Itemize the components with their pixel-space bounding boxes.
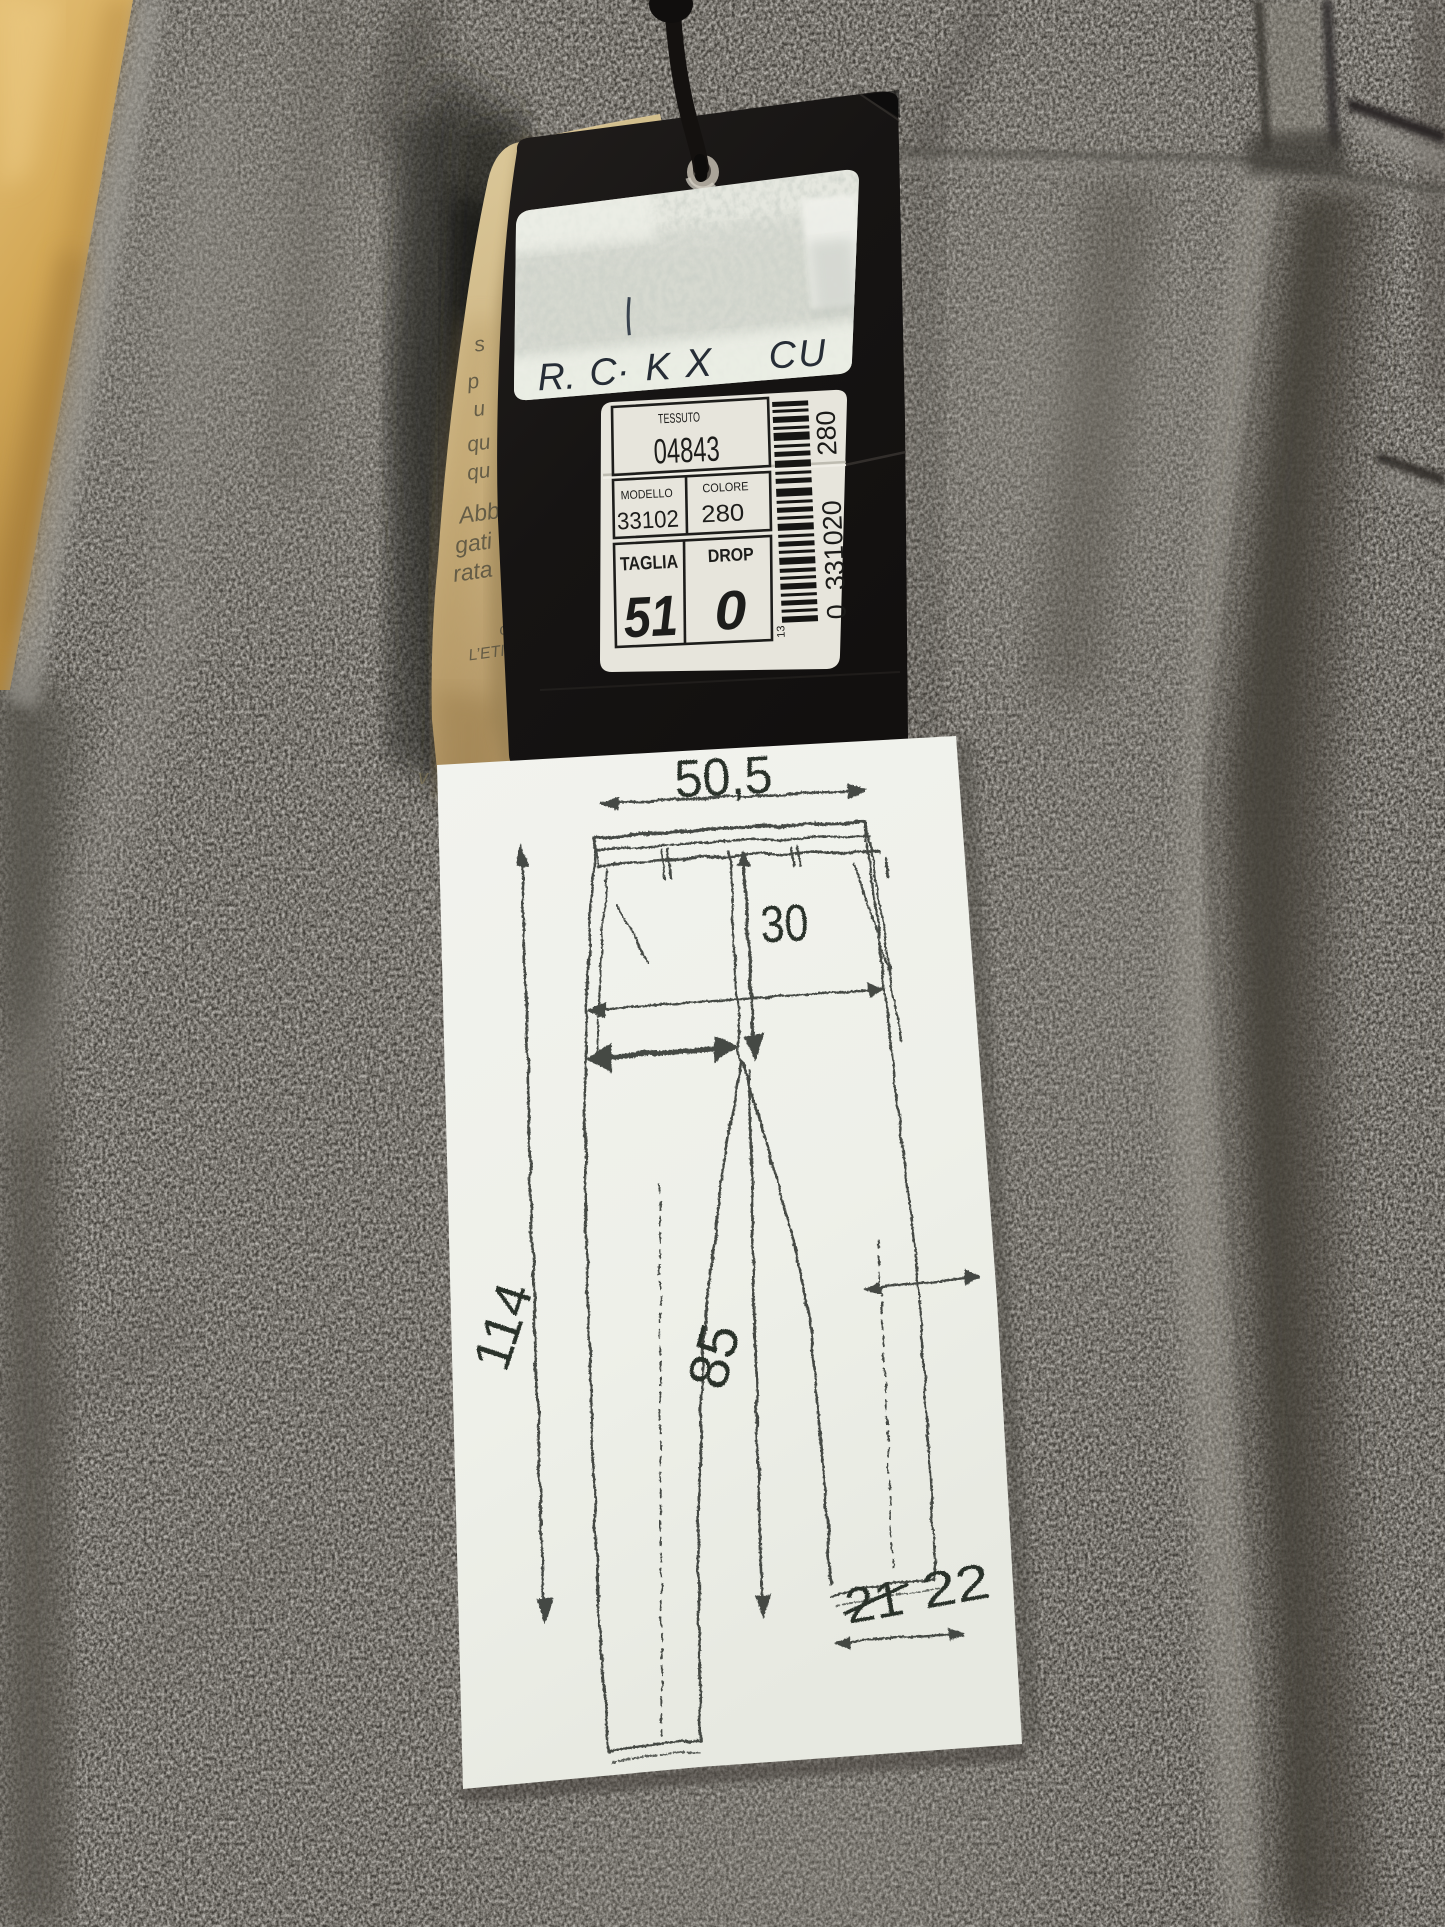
svg-text:51: 51 [622,584,679,651]
svg-text:13: 13 [775,625,788,638]
svg-text:30: 30 [759,894,810,954]
svg-text:280: 280 [701,499,745,528]
svg-text:0: 0 [821,604,852,620]
svg-text:50,5: 50,5 [673,745,774,809]
svg-text:22: 22 [917,1552,994,1619]
svg-text:331020: 331020 [817,500,851,591]
svg-text:qu: qu [466,459,493,485]
svg-text:K: K [644,346,673,389]
svg-text:R.: R. [536,355,576,399]
svg-text:21: 21 [841,1569,908,1634]
svg-text:CU: CU [768,332,829,377]
svg-text:04843: 04843 [653,429,721,471]
svg-text:gati: gati [453,527,494,558]
svg-text:MODELLO: MODELLO [620,486,673,503]
svg-text:0: 0 [713,578,748,642]
svg-text:C·: C· [588,350,630,394]
svg-text:33102: 33102 [616,506,679,536]
svg-text:X: X [683,341,714,387]
svg-text:DROP: DROP [707,544,754,566]
svg-text:v: v [418,767,429,789]
svg-text:rata: rata [451,556,494,587]
svg-text:COLORE: COLORE [702,479,749,495]
svg-text:TESSUTO: TESSUTO [658,409,701,426]
svg-text:280: 280 [811,410,843,456]
svg-text:qu: qu [466,431,493,457]
svg-text:TAGLIA: TAGLIA [620,552,679,576]
